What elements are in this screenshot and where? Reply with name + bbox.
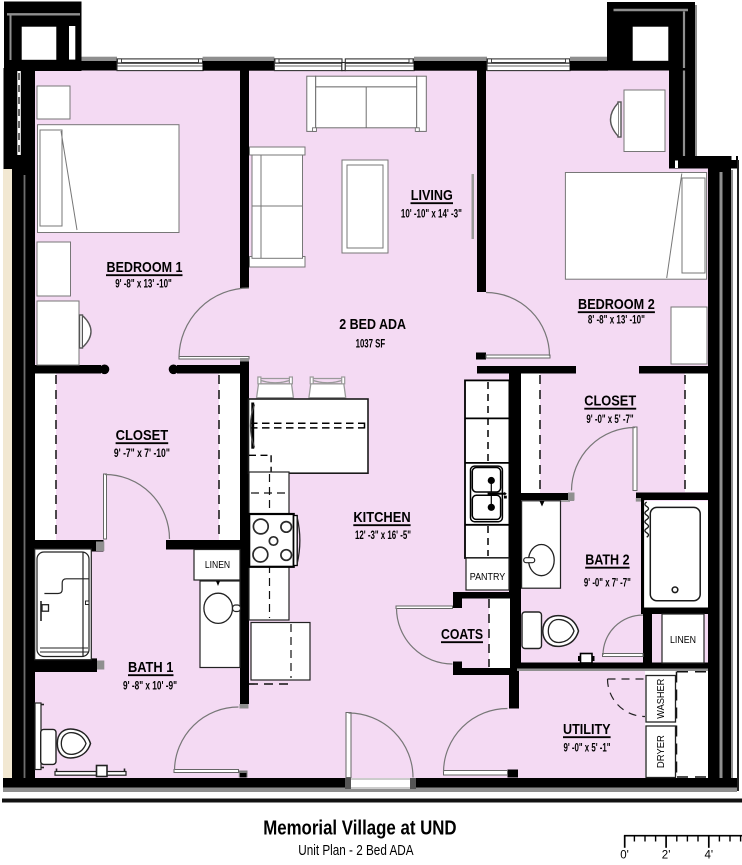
svg-text:9' -0" x 7' -7": 9' -0" x 7' -7" (584, 576, 631, 590)
svg-text:PANTRY: PANTRY (470, 571, 505, 583)
svg-text:8' -8" x 13' -10": 8' -8" x 13' -10" (588, 313, 645, 327)
svg-text:9' -7" x 7' -10": 9' -7" x 7' -10" (114, 446, 170, 460)
svg-text:BEDROOM 2: BEDROOM 2 (578, 296, 655, 313)
svg-text:9' -8" x 10' -9": 9' -8" x 10' -9" (123, 679, 177, 693)
svg-text:COATS: COATS (441, 626, 483, 643)
svg-text:DRYER: DRYER (655, 735, 667, 768)
svg-text:9' -0" x 5' -1": 9' -0" x 5' -1" (564, 741, 611, 755)
svg-text:0': 0' (620, 850, 629, 862)
svg-text:WASHER: WASHER (655, 678, 667, 718)
svg-text:LINEN: LINEN (670, 634, 696, 646)
svg-text:LIVING: LIVING (411, 187, 453, 204)
svg-text:LINEN: LINEN (205, 559, 230, 571)
svg-text:9' -8" x 13' -10": 9' -8" x 13' -10" (115, 276, 172, 290)
svg-text:2': 2' (662, 850, 671, 862)
svg-text:BEDROOM 1: BEDROOM 1 (107, 259, 183, 276)
svg-text:BATH 2: BATH 2 (585, 552, 629, 569)
svg-text:2 BED ADA: 2 BED ADA (339, 316, 406, 333)
svg-text:Memorial Village at UND: Memorial Village at UND (263, 817, 456, 839)
svg-text:CLOSET: CLOSET (116, 427, 169, 444)
svg-text:12' -3" x 16' -5": 12' -3" x 16' -5" (355, 528, 411, 542)
svg-text:Unit Plan - 2 Bed ADA: Unit Plan - 2 Bed ADA (298, 843, 414, 859)
svg-text:UTILITY: UTILITY (563, 721, 611, 738)
svg-text:BATH 1: BATH 1 (128, 659, 174, 676)
svg-text:10' -10" x 14' -3": 10' -10" x 14' -3" (401, 206, 462, 220)
svg-text:1037 SF: 1037 SF (356, 338, 386, 350)
svg-text:KITCHEN: KITCHEN (353, 509, 410, 526)
svg-text:9' -0" x 5' -7": 9' -0" x 5' -7" (586, 412, 633, 426)
svg-text:4': 4' (705, 850, 714, 862)
svg-text:CLOSET: CLOSET (584, 393, 636, 410)
